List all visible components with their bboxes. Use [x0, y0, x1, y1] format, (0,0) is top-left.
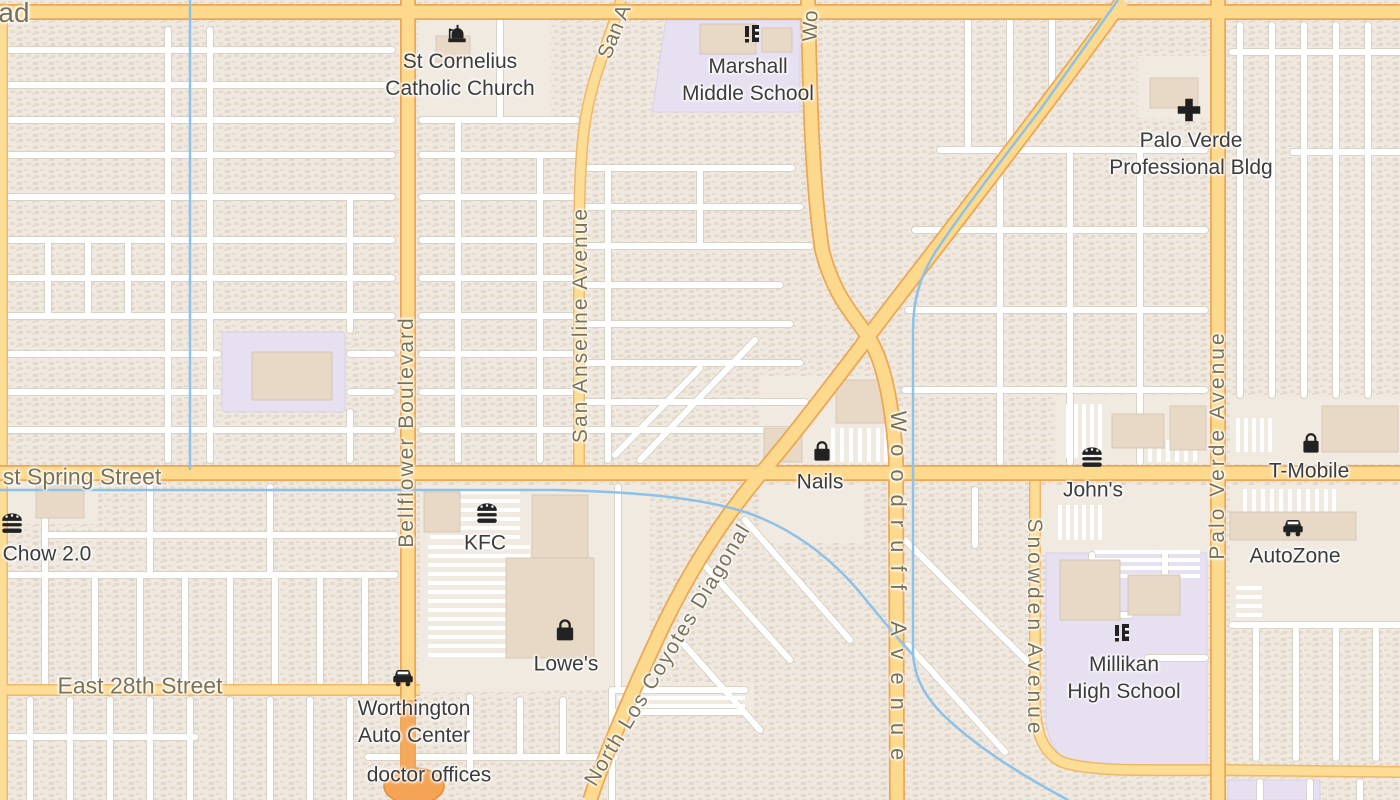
shopping-bag-icon[interactable]	[551, 617, 579, 645]
road-label-east-28th: East 28th Street	[58, 673, 223, 700]
restaurant-icon[interactable]	[1079, 443, 1105, 469]
poi-label-st-cornelius[interactable]: St Cornelius Catholic Church	[385, 48, 534, 102]
poi-label-doctor-offices[interactable]: doctor offices	[367, 762, 492, 789]
poi-label-millikan[interactable]: Millikan High School	[1067, 651, 1180, 705]
map-canvas[interactable]: ad st Spring Street East 28th Street Bel…	[0, 0, 1400, 800]
school-icon[interactable]	[740, 22, 764, 46]
poi-label-chow[interactable]: Chow 2.0	[3, 541, 92, 568]
school-icon[interactable]	[1110, 621, 1134, 645]
poi-label-johns[interactable]: John's	[1063, 477, 1123, 504]
medical-cross-icon[interactable]	[1174, 95, 1204, 125]
road-label-spring-street: st Spring Street	[3, 464, 162, 491]
shopping-bag-icon[interactable]	[809, 439, 835, 465]
road-label-snowden: Snowden Avenue	[1022, 518, 1046, 737]
poi-label-lowes[interactable]: Lowe's	[534, 651, 599, 678]
road-label-bellflower: Bellflower Boulevard	[395, 316, 419, 547]
road-label-top-left-partial: ad	[0, 0, 30, 29]
road-label-woodruff-partial: Wo	[798, 10, 823, 42]
church-icon[interactable]	[444, 20, 470, 46]
restaurant-icon[interactable]	[474, 499, 500, 525]
shopping-bag-icon[interactable]	[1298, 431, 1324, 457]
poi-label-tmobile[interactable]: T-Mobile	[1269, 458, 1350, 485]
poi-label-kfc[interactable]: KFC	[464, 530, 506, 557]
poi-label-palo-verde-bldg[interactable]: Palo Verde Professional Bldg	[1109, 127, 1272, 181]
lowes-building	[506, 558, 594, 658]
kfc-building	[424, 492, 460, 532]
car-icon[interactable]	[1280, 514, 1306, 540]
poi-label-worthington[interactable]: Worthington Auto Center	[358, 695, 471, 749]
road-label-san-anseline: San Anseline Avenue	[569, 207, 593, 443]
road-label-woodruff: Woodruff Avenue	[885, 411, 911, 774]
poi-label-nails[interactable]: Nails	[797, 469, 844, 496]
restaurant-icon[interactable]	[0, 509, 25, 535]
car-icon[interactable]	[390, 664, 416, 690]
poi-label-autozone[interactable]: AutoZone	[1249, 543, 1340, 570]
road-label-palo-verde: Palo Verde Avenue	[1206, 330, 1230, 559]
poi-label-marshall[interactable]: Marshall Middle School	[682, 53, 814, 107]
